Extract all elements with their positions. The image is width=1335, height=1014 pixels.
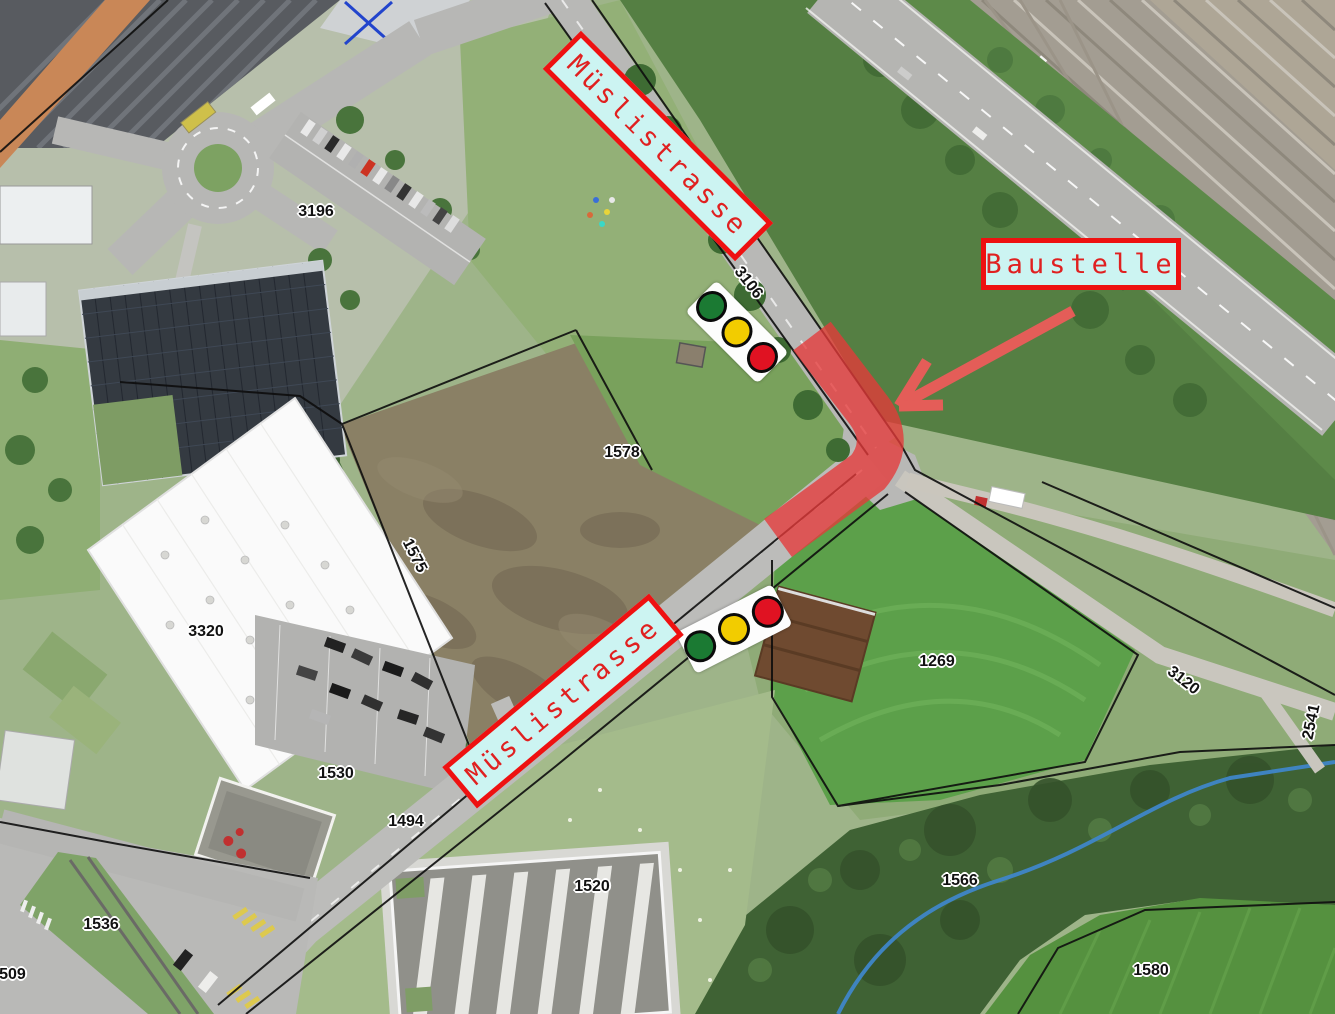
parcel-label-3320: 3320 <box>188 623 224 641</box>
parcel-label-1536: 1536 <box>83 916 119 934</box>
parcel-label-3196: 3196 <box>298 203 334 221</box>
parcel-label-1578: 1578 <box>604 444 640 462</box>
parcel-label-1530: 1530 <box>318 765 354 783</box>
traffic-light-yellow-lamp <box>712 607 755 650</box>
construction-site-label: Baustelle <box>981 238 1181 290</box>
parcel-label-1520: 1520 <box>574 878 610 896</box>
parcel-label-1566: 1566 <box>942 872 978 890</box>
aerial-map[interactable]: Müslistrasse Müslistrasse Baustelle 3196… <box>0 0 1335 1014</box>
parcel-label-1269: 1269 <box>919 653 955 671</box>
parcel-label-1580: 1580 <box>1133 962 1169 980</box>
parcel-label-4509: 4509 <box>0 966 26 984</box>
parcel-label-1494: 1494 <box>388 813 424 831</box>
building-1520 <box>379 842 681 1014</box>
